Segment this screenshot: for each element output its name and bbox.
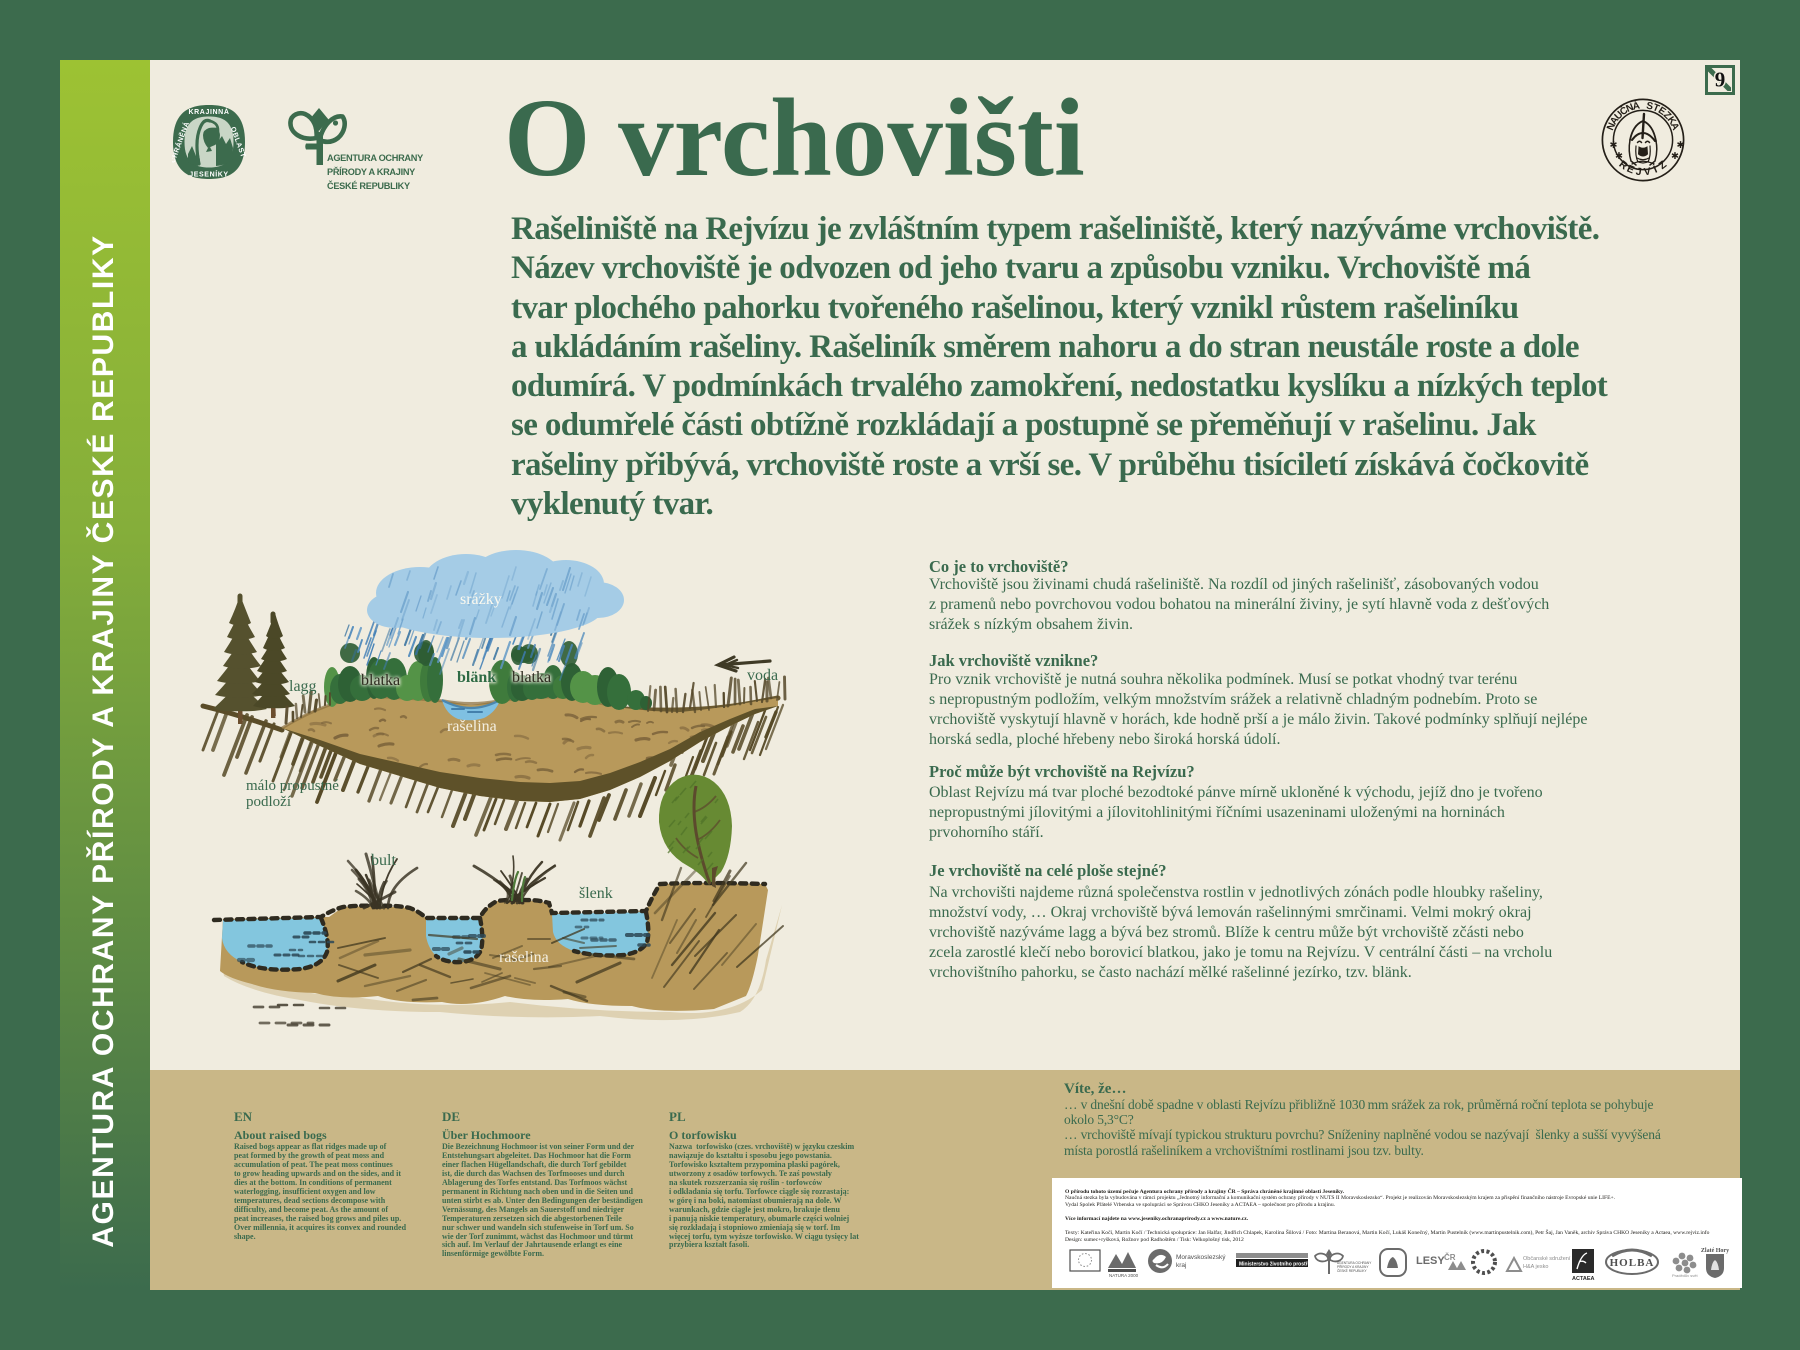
svg-text:LESY: LESY <box>1416 1255 1445 1267</box>
svg-text:Ministerstvo životního prostře: Ministerstvo životního prostředí <box>1239 1262 1315 1268</box>
svg-text:Moravskoslezský: Moravskoslezský <box>1176 1254 1226 1261</box>
svg-text:Zlaté Hory: Zlaté Hory <box>1701 1248 1729 1254</box>
svg-text:HOLBA: HOLBA <box>1610 1257 1655 1269</box>
svg-text:kraj: kraj <box>1176 1262 1186 1269</box>
svg-text:ČR: ČR <box>1444 1253 1456 1262</box>
svg-text:ACTAEA: ACTAEA <box>1572 1276 1595 1282</box>
svg-text:ČESKÉ REPUBLIKY: ČESKÉ REPUBLIKY <box>1337 1268 1367 1273</box>
svg-text:Pradědův svět: Pradědův svět <box>1672 1273 1698 1278</box>
svg-text:Občanské sdružení: Občanské sdružení <box>1523 1256 1571 1262</box>
svg-text:H&A jesko: H&A jesko <box>1523 1264 1548 1270</box>
svg-text:NATURA 2000: NATURA 2000 <box>1109 1273 1139 1278</box>
